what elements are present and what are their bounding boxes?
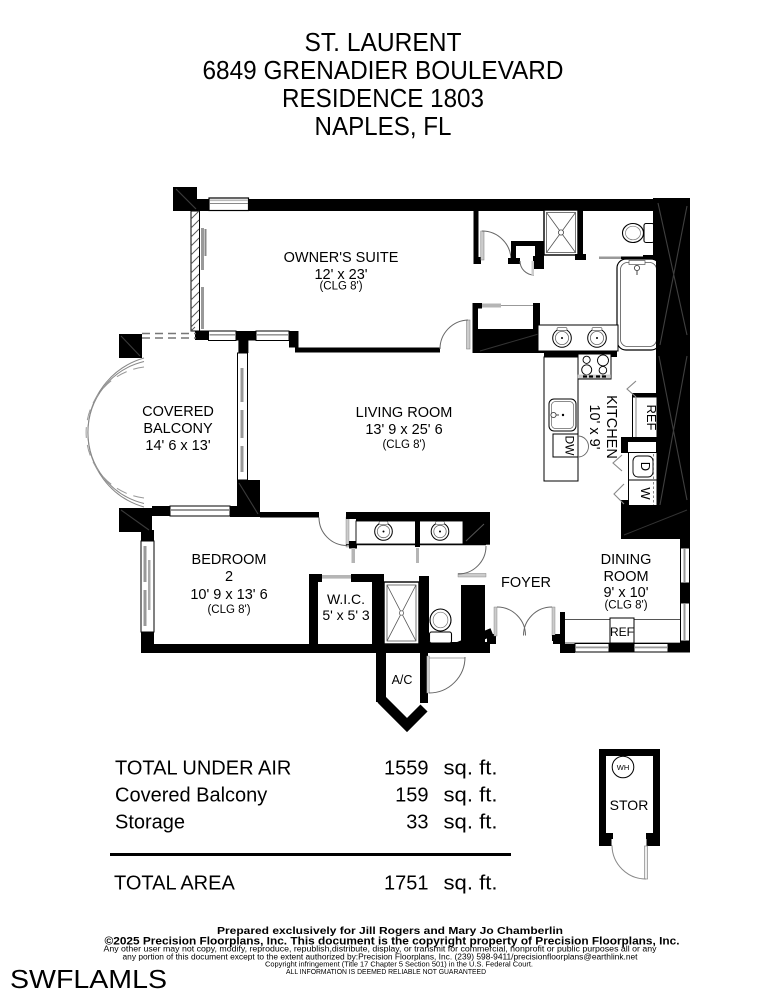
svg-text:33: 33 — [406, 812, 428, 834]
svg-text:6849 GRENADIER BOULEVARD: 6849 GRENADIER BOULEVARD — [203, 55, 564, 85]
svg-text:RESIDENCE 1803: RESIDENCE 1803 — [282, 83, 484, 113]
svg-text:DW: DW — [563, 436, 577, 457]
svg-text:10' 9 x 13' 6: 10' 9 x 13' 6 — [190, 587, 267, 603]
svg-text:(CLG 8'): (CLG 8') — [604, 600, 647, 612]
svg-text:sq. ft.: sq. ft. — [444, 873, 498, 895]
svg-text:Covered Balcony: Covered Balcony — [115, 785, 267, 807]
svg-text:sq. ft.: sq. ft. — [444, 812, 498, 834]
svg-text:W.I.C.: W.I.C. — [327, 591, 365, 607]
svg-text:ALL INFORMATION IS DEEMED RELI: ALL INFORMATION IS DEEMED RELIABLE NOT G… — [286, 967, 486, 976]
svg-text:2: 2 — [225, 569, 233, 585]
svg-text:159: 159 — [395, 785, 428, 807]
svg-text:sq. ft.: sq. ft. — [444, 785, 498, 807]
svg-text:FOYER: FOYER — [501, 575, 551, 591]
svg-text:TOTAL AREA: TOTAL AREA — [114, 873, 235, 895]
svg-text:(CLG 8'): (CLG 8') — [319, 281, 362, 293]
svg-text:(CLG 8'): (CLG 8') — [382, 439, 425, 451]
svg-text:13' 9 x 25' 6: 13' 9 x 25' 6 — [365, 422, 442, 438]
svg-text:D: D — [638, 462, 653, 471]
svg-text:5' x 5' 3: 5' x 5' 3 — [322, 607, 370, 623]
svg-text:LIVING ROOM: LIVING ROOM — [356, 405, 453, 421]
svg-text:WH: WH — [617, 763, 630, 772]
svg-text:A/C: A/C — [392, 673, 413, 687]
svg-text:TOTAL UNDER AIR: TOTAL UNDER AIR — [115, 758, 291, 780]
svg-text:14' 6 x 13': 14' 6 x 13' — [145, 438, 210, 454]
svg-text:DINING: DINING — [601, 552, 652, 568]
svg-text:COVERED: COVERED — [142, 404, 214, 420]
svg-text:W: W — [638, 487, 653, 500]
svg-text:STOR: STOR — [610, 797, 649, 813]
svg-text:KITCHEN: KITCHEN — [603, 395, 619, 459]
svg-text:1751: 1751 — [384, 873, 429, 895]
svg-text:ST. LAURENT: ST. LAURENT — [305, 27, 462, 57]
svg-text:NAPLES, FL: NAPLES, FL — [315, 111, 452, 141]
svg-text:10' x 9': 10' x 9' — [586, 404, 602, 449]
svg-text:SWFLAMLS: SWFLAMLS — [10, 966, 167, 994]
svg-text:sq. ft.: sq. ft. — [444, 758, 498, 780]
svg-text:1559: 1559 — [384, 758, 429, 780]
svg-text:OWNER'S SUITE: OWNER'S SUITE — [284, 250, 399, 266]
svg-text:Storage: Storage — [115, 812, 185, 834]
svg-text:REF: REF — [610, 625, 634, 639]
svg-text:(CLG 8'): (CLG 8') — [207, 604, 250, 616]
svg-text:BALCONY: BALCONY — [143, 421, 213, 437]
svg-text:REF: REF — [644, 405, 659, 431]
svg-text:BEDROOM: BEDROOM — [192, 552, 267, 568]
svg-text:ROOM: ROOM — [603, 569, 648, 585]
